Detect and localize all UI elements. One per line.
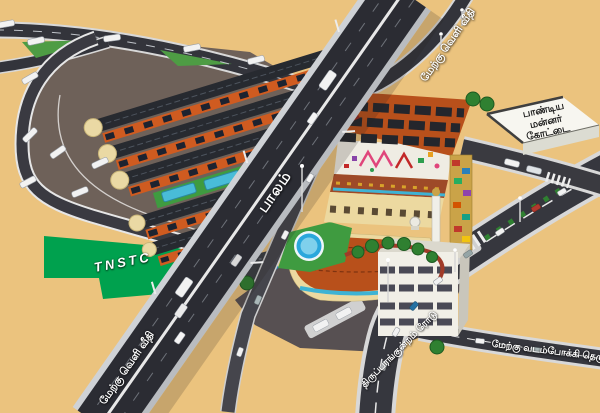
site-illustration: [0, 0, 600, 413]
parking-garage: [378, 238, 470, 336]
gopuram-tower: [450, 155, 472, 250]
statue-tower: [432, 188, 440, 242]
fountain-statue: [410, 217, 420, 227]
bus-terminal-aerial-rendering: பாலம் மேற்கு வெளி வீதி மேற்கு வெளி வீதி …: [0, 0, 600, 413]
